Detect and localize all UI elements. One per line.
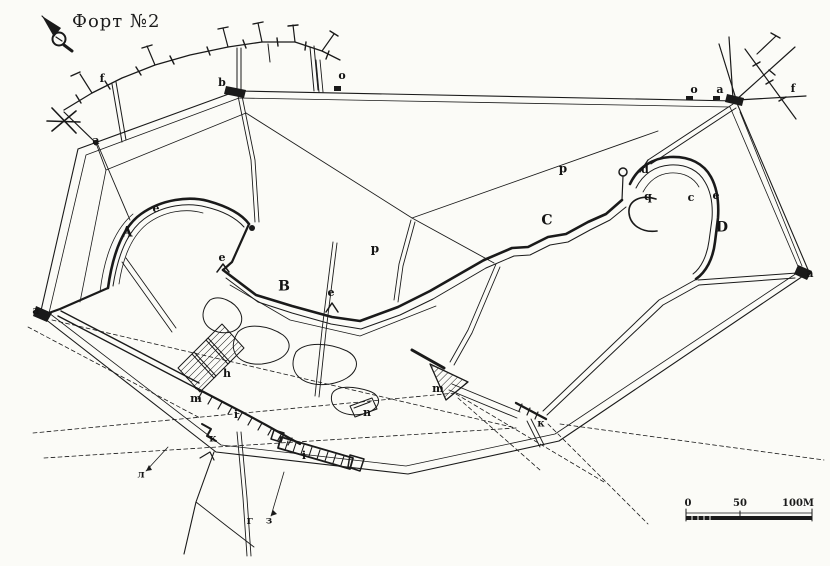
map-title: Форт №2 [72, 11, 160, 32]
outer-glacis-boundary [40, 91, 809, 474]
main-rampart [33, 104, 812, 415]
interior-works [122, 60, 546, 556]
north-arrow-icon [42, 16, 72, 51]
fort-plan-drawing [0, 0, 830, 566]
dashed-sightlines [28, 320, 824, 524]
scale-tick-50: 50 [733, 498, 747, 509]
glacis-plateau-lines [246, 113, 658, 263]
fort-plan-page: Форт №2 ABCDabooaffaaeeeecdqpphmiкmкniгз… [0, 0, 830, 566]
scale-bar: 0 50 100М [680, 498, 820, 528]
trench-line-left [47, 22, 341, 220]
scale-tick-100: 100М [782, 498, 814, 509]
scale-tick-0: 0 [685, 498, 692, 509]
trench-line-right [686, 33, 806, 119]
